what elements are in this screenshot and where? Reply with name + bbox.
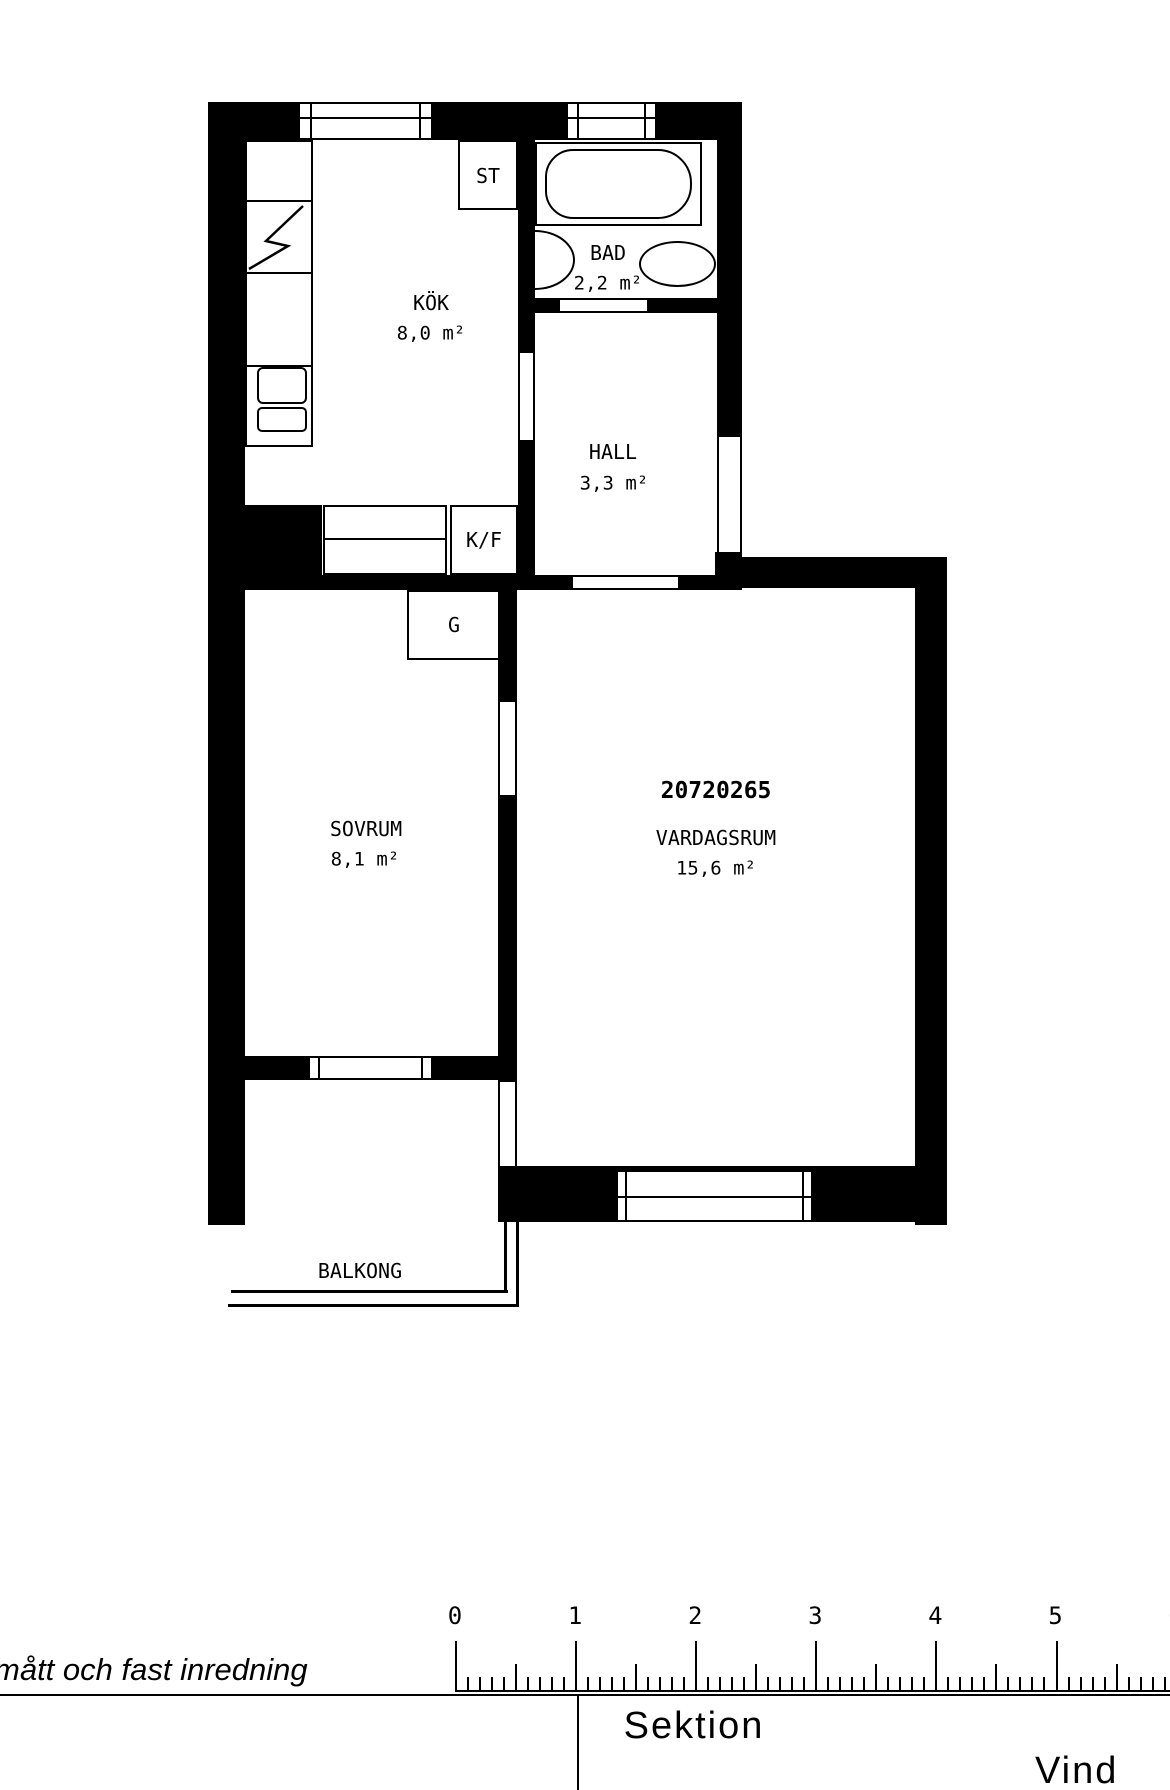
ruler-tick [1019,1677,1021,1692]
ruler-tick [839,1677,841,1692]
ruler-number: 2 [688,1604,702,1628]
ruler-tick [611,1677,613,1692]
toilet-icon [639,241,716,287]
room-area-bad: 2,2 m² [574,273,643,296]
ruler-tick [911,1677,913,1692]
ruler-tick [995,1664,997,1692]
ruler-tick [503,1677,505,1692]
ruler-tick [671,1677,673,1692]
ruler-tick [803,1677,805,1692]
divider-line-vertical [577,1696,579,1790]
door-entrance [717,437,742,552]
ruler-tick [647,1677,649,1692]
window-frame-tick [421,1058,423,1078]
ruler-tick [1056,1641,1058,1692]
wardrobe-label: G [448,613,460,637]
window-frame-tick [310,104,312,138]
balcony-railing [504,1222,507,1292]
bathtub-icon [545,149,692,219]
ruler-tick [539,1677,541,1692]
divider-line [0,1694,1170,1696]
ruler-tick [863,1677,865,1692]
wall-top [208,102,742,140]
opening-bedroom-livingroom [498,700,517,797]
window-frame-midline [618,1196,811,1198]
window-frame-tick [644,104,646,138]
ruler-tick [947,1677,949,1692]
ruler-tick [527,1677,529,1692]
ruler-number: 0 [448,1604,462,1628]
ruler-tick [755,1664,757,1692]
wall-bedroom-livingroom [498,590,517,1166]
ruler-tick [1164,1677,1166,1692]
ruler-tick [635,1664,637,1692]
window-frame-midline [300,117,431,119]
fridge-freezer-label: K/F [466,528,502,552]
ruler-tick [551,1677,553,1692]
ruler-tick [1068,1677,1070,1692]
ruler-tick [683,1677,685,1692]
plan-number: 20720265 [661,778,772,806]
ruler-tick [587,1677,589,1692]
room-area-kok: 8,0 m² [397,323,466,346]
ruler-tick [623,1677,625,1692]
ruler-number: 5 [1048,1604,1062,1628]
ruler-tick [899,1677,901,1692]
ruler-tick [887,1677,889,1692]
ruler-tick [455,1641,457,1692]
balcony-railing [228,1304,519,1307]
ruler-tick [779,1677,781,1692]
ruler-tick [923,1677,925,1692]
ruler-tick [1152,1677,1154,1692]
ruler-tick [1104,1677,1106,1692]
ruler-tick [815,1641,817,1692]
ruler-tick [563,1677,565,1692]
door-hall-livingroom [573,575,678,590]
closet-label: ST [476,164,500,188]
ruler-number: 4 [928,1604,942,1628]
balcony-railing [516,1222,519,1307]
ruler-tick [1116,1664,1118,1692]
door-balcony [498,1082,517,1166]
counter-divider [247,272,311,274]
ruler-tick [1043,1677,1045,1692]
ruler-tick [791,1677,793,1692]
ruler-number: 3 [808,1604,822,1628]
attic-label: Vind [1035,1750,1118,1790]
ruler-tick [971,1677,973,1692]
room-label-kok: KÖK [413,291,449,315]
section-label: Sektion [624,1705,765,1748]
ruler-tick [767,1677,769,1692]
room-label-sovrum: SOVRUM [330,817,402,841]
ruler-tick [935,1641,937,1692]
ruler-tick [599,1677,601,1692]
ruler-tick [515,1664,517,1692]
room-label-bad: BAD [590,241,626,265]
washbasin-icon [535,230,575,290]
kitchen-sink-icon [257,367,307,404]
door-kitchen-hall [518,353,535,440]
floor-plan: KÖK 8,0 m² ST BAD 2,2 m² HALL 3,3 m² K/F… [0,0,1170,1790]
ruler-tick [1128,1677,1130,1692]
door-bath-hall [560,298,647,313]
ruler-tick [467,1677,469,1692]
window-bath [566,102,657,140]
balcony-railing [231,1290,508,1293]
kitchen-sink-icon [257,407,307,432]
counter-divider [325,538,445,540]
ruler-tick [1031,1677,1033,1692]
ruler-tick [851,1677,853,1692]
ruler-tick [479,1677,481,1692]
ruler-tick [707,1677,709,1692]
ruler-tick [731,1677,733,1692]
ruler-tick [1080,1677,1082,1692]
room-label-vardagsrum: VARDAGSRUM [656,826,776,850]
ruler-tick [959,1677,961,1692]
window-frame-midline [568,117,655,119]
ruler-tick [1007,1677,1009,1692]
footer-note: mått och fast inredning [0,1652,308,1688]
stove-icon [245,200,313,272]
ruler-tick [983,1677,985,1692]
window-bedroom-balcony [308,1056,433,1080]
ruler-tick [695,1641,697,1692]
room-label-hall: HALL [589,440,637,464]
room-label-balkong: BALKONG [318,1259,402,1283]
ruler-tick [875,1664,877,1692]
window-frame-tick [419,104,421,138]
ruler-tick [827,1677,829,1692]
window-kitchen [298,102,433,140]
ruler-tick [491,1677,493,1692]
window-frame-tick [577,104,579,138]
ruler-tick [659,1677,661,1692]
ruler-tick [1140,1677,1142,1692]
wall-mid-block [208,505,322,590]
window-livingroom [616,1170,813,1222]
window-frame-tick [318,1058,320,1078]
kitchen-counter-bottom [323,505,447,575]
ruler-number: 1 [568,1604,582,1628]
ruler-tick [719,1677,721,1692]
ruler-tick [1092,1677,1094,1692]
room-area-vardagsrum: 15,6 m² [676,858,756,881]
room-area-hall: 3,3 m² [580,473,649,496]
wall-right-outer [915,557,947,1225]
ruler-tick [575,1641,577,1692]
ruler-tick [743,1677,745,1692]
room-area-sovrum: 8,1 m² [331,849,400,872]
